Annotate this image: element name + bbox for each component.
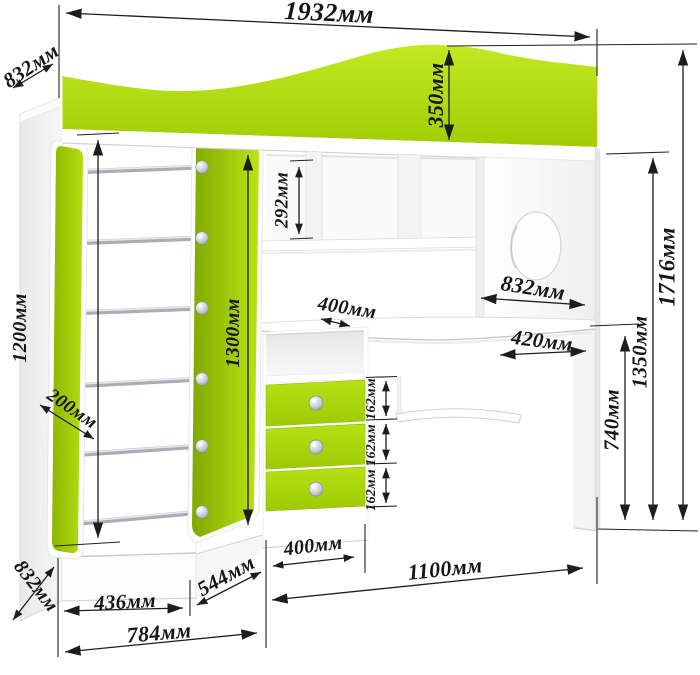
dim-label-shelf-opening: 292мм [273,172,292,228]
dim-label-headboard-height: 350мм [425,63,447,128]
dim-label-drawer-1: 162мм [365,378,379,420]
oval-cutout [511,212,561,280]
dim-label-bunk-panel-height: 1300мм [223,298,243,367]
under-bed-shelving [262,151,484,254]
dim-label-drawer-3: 162мм [365,469,379,511]
shelf-compartment [322,156,398,240]
dim-label-total-width: 1932мм [284,0,374,28]
dim-label-wardrobe-interior: 1200мм [10,293,30,362]
furniture-dimension-diagram: 1932мм 832мм 350мм 292мм 1200мм 200мм 13… [0,0,700,675]
dim-label-desk-height: 740мм [602,389,623,451]
dim-label-drawer-2: 162мм [365,424,379,466]
shelf-divider [398,154,421,241]
cabinet-divider [476,157,484,333]
right-edge [595,147,600,531]
dim-label-total-height: 1716мм [656,227,679,306]
dim-label-bed-base-height: 1350мм [630,316,651,389]
furniture-illustration [0,0,700,675]
shelf-support [397,377,401,419]
shelf-divider [306,151,322,241]
dim-label-wardrobe-width: 436мм [94,590,157,614]
dim-label-base-width: 784мм [126,619,192,647]
shelf-compartment [421,158,476,240]
desk-side-panel [574,334,595,530]
bed-top [62,45,598,162]
ladder-stile [52,146,83,553]
keyboard-shelf [396,409,521,423]
headboard-panel [62,45,597,147]
drawer-unit [263,327,368,548]
